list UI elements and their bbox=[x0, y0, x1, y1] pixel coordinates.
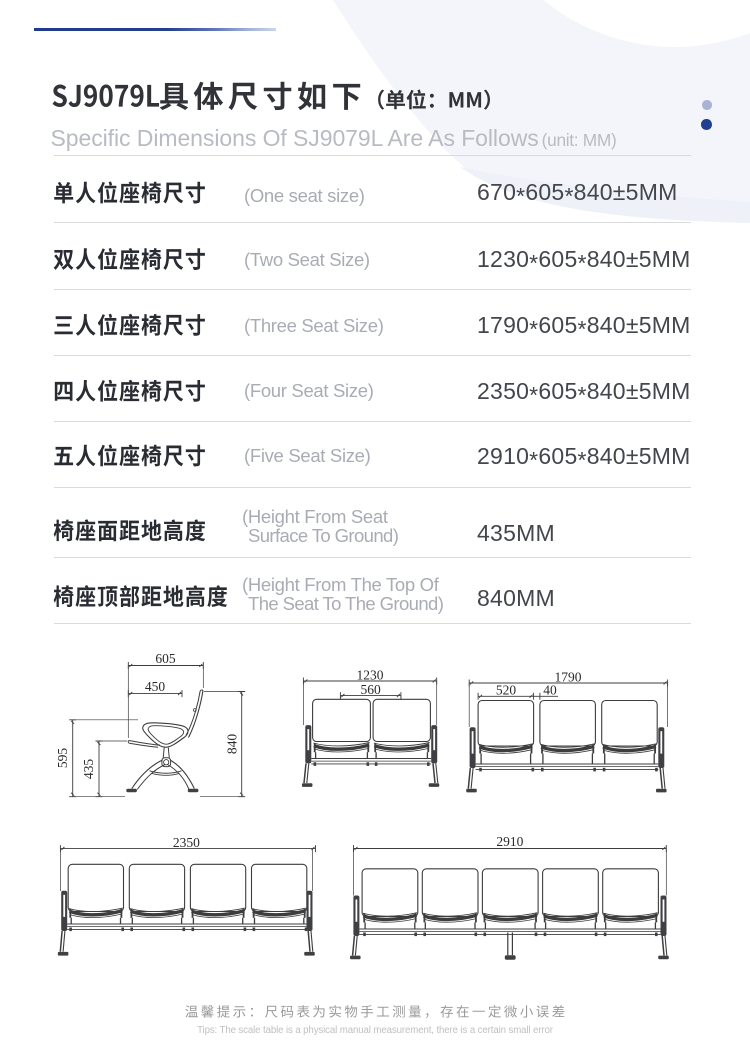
svg-text:605: 605 bbox=[155, 651, 176, 666]
svg-text:1790: 1790 bbox=[555, 670, 582, 685]
svg-text:1230: 1230 bbox=[357, 668, 384, 683]
svg-text:40: 40 bbox=[543, 683, 557, 698]
svg-text:560: 560 bbox=[360, 682, 381, 697]
svg-text:435: 435 bbox=[81, 759, 96, 780]
svg-text:840: 840 bbox=[225, 734, 240, 755]
svg-text:450: 450 bbox=[145, 679, 166, 694]
svg-text:520: 520 bbox=[496, 683, 517, 698]
svg-text:2350: 2350 bbox=[173, 835, 200, 850]
svg-text:2910: 2910 bbox=[496, 834, 523, 849]
svg-text:595: 595 bbox=[55, 748, 70, 769]
